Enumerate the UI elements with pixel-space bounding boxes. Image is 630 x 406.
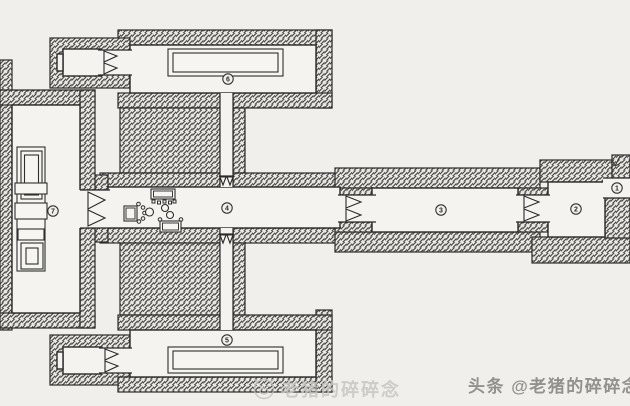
label-rear-hall: 7 xyxy=(48,206,58,216)
label-middle-hall: 4 xyxy=(222,203,232,213)
label-left-annex: 6 xyxy=(223,74,233,84)
svg-text:5: 5 xyxy=(225,338,229,345)
watermark-center-text: 老猪的碎碎念 xyxy=(281,379,401,400)
svg-text:4: 4 xyxy=(225,206,229,213)
label-tunnel: 1 xyxy=(612,183,622,193)
coffin-platform-rear-hall xyxy=(15,147,47,271)
label-front-hall: 3 xyxy=(436,205,446,215)
coffin-bed-left-annex xyxy=(168,49,283,76)
svg-text:2: 2 xyxy=(574,207,578,214)
left-annex-antechamber xyxy=(63,49,101,76)
watermark-bottom-right-text: 头条 @老猪的碎碎念 xyxy=(468,376,630,396)
right-annex-antechamber xyxy=(63,347,101,374)
label-right-annex: 5 xyxy=(222,335,232,345)
floor-plan-svg: 1 2 3 4 5 6 7 xyxy=(0,0,630,406)
coffin-bed-right-annex xyxy=(168,347,283,373)
svg-text:3: 3 xyxy=(439,208,443,215)
svg-text:6: 6 xyxy=(226,77,230,84)
svg-text:1: 1 xyxy=(615,186,619,193)
svg-text:7: 7 xyxy=(51,209,55,216)
label-entrance-hall: 2 xyxy=(571,204,581,214)
scanned-floor-plan: 1 2 3 4 5 6 7 xyxy=(0,0,630,406)
